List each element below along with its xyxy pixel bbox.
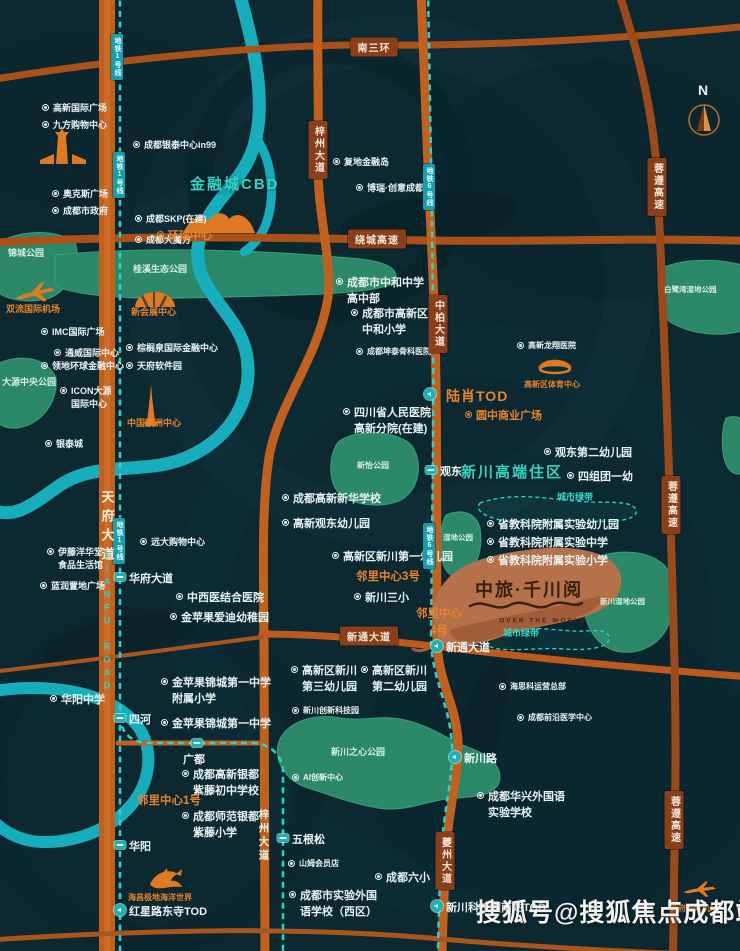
road-badge: 南三环: [351, 38, 398, 57]
poi-bullet-icon: [288, 860, 295, 867]
poi-bullet-icon: [133, 141, 140, 148]
poi-label: 天府软件园: [126, 360, 182, 373]
landmark-label: 双流国际机场: [6, 303, 60, 316]
poi-bullet-icon: [291, 666, 298, 673]
label-text: 四组团一幼: [578, 470, 633, 486]
compass-north-label: N: [698, 82, 708, 98]
label-text: 高新区新川第二幼儿园: [372, 664, 427, 696]
label-text: 高新龙翔医院: [528, 340, 576, 352]
label-text: 蓝润置地广场: [51, 580, 105, 593]
ocean-park-dolphin-icon: [150, 868, 182, 888]
park-label: 湿地公园: [443, 533, 473, 544]
poi-bullet-icon: [333, 158, 340, 165]
poi-bullet-icon: [52, 190, 59, 197]
metro-line-badge: 地铁6号线: [423, 164, 435, 210]
poi-label: 金苹果锦城第一中学: [161, 717, 271, 733]
label-line: 第三幼儿园: [302, 680, 357, 696]
label-line: 国际中心: [71, 398, 112, 411]
poi-bullet-icon: [332, 552, 339, 559]
district-label: 金融城CBD: [190, 174, 280, 196]
poi-label: 银泰城: [45, 438, 83, 451]
poi-bullet-icon: [487, 556, 494, 563]
poi-label: 成都六小: [375, 871, 430, 887]
poi-bullet-icon: [351, 309, 358, 316]
metro-station-marker: [431, 640, 443, 652]
poi-label: 山姆会员店: [288, 858, 339, 870]
poi-label: 棕榈泉国际金融中心: [126, 342, 218, 355]
road-badge: 梓州大道: [309, 121, 328, 179]
poi-bullet-icon: [176, 593, 183, 600]
poi-bullet-icon: [52, 207, 59, 214]
poi-label: 金苹果爱迪幼稚园: [170, 611, 269, 627]
poi-bullet-icon: [135, 215, 142, 222]
label-line: 紫藤初中学校: [193, 784, 259, 800]
road-name-label: 梓州大道: [257, 809, 272, 863]
poi-bullet-icon: [42, 121, 49, 128]
poi-bullet-icon: [45, 440, 52, 447]
road-badge: 绕城高速: [348, 230, 406, 249]
poi-bullet-icon: [487, 538, 494, 545]
label-line: 高新区新川: [302, 664, 357, 680]
label-line: 高新区新川: [372, 664, 427, 680]
metro-station-marker: [449, 751, 461, 763]
label-text: AI创新中心: [303, 772, 343, 784]
poi-label: 成都SKP(在建): [135, 213, 207, 226]
station-name: 华阳: [129, 838, 151, 854]
poi-label: 成都坤泰骨科医院: [356, 346, 431, 358]
poi-label: 海思科运营总部: [499, 681, 566, 693]
label-text: 高新国际广场: [53, 102, 107, 115]
station-name: 华府大道: [129, 570, 173, 586]
park-label: 大源中央公园: [2, 376, 56, 389]
label-text: 新会展中心: [131, 306, 176, 319]
poi-bullet-icon: [356, 184, 363, 191]
landmark-label: 新会展中心: [131, 306, 176, 319]
poi-bullet-icon: [465, 411, 472, 418]
greenbelt-label: 城市绿带: [503, 627, 539, 640]
poi-bullet-icon: [517, 714, 524, 721]
label-text: 圆中商业广场: [476, 409, 542, 425]
poi-label: 成都师范银都紫藤小学: [182, 810, 259, 842]
metro-line-badge: 地铁1号线: [113, 152, 125, 198]
poi-bullet-icon: [157, 231, 164, 238]
label-text: 金苹果锦城第一中学附属小学: [172, 676, 271, 708]
label-text: 成都坤泰骨科医院: [367, 346, 431, 358]
metro-station-marker: [114, 904, 126, 916]
poi-label: 成都市高新区中和小学: [351, 307, 428, 339]
poi-label: 成都华兴外国语实验学校: [477, 790, 565, 822]
label-line: 第二幼儿园: [372, 680, 427, 696]
poi-bullet-icon: [126, 362, 133, 369]
poi-label: 成都高新新华学校: [282, 492, 381, 508]
poi-label: 成都银泰中心in99: [133, 139, 216, 152]
label-text: 成都市政府: [63, 205, 108, 218]
label-text: 中西医结合医院: [187, 591, 264, 607]
poi-bullet-icon: [487, 520, 494, 527]
park-label: 新怡公园: [357, 460, 389, 472]
label-text: 成都SKP(在建): [146, 213, 207, 226]
poi-bullet-icon: [42, 104, 49, 111]
poi-bullet-icon: [282, 519, 289, 526]
poi-label: 复地金融岛: [333, 156, 389, 169]
label-text: 城市绿带: [557, 491, 593, 504]
label-text: 成都高新银都紫藤初中学校: [193, 768, 259, 800]
poi-bullet-icon: [47, 548, 54, 555]
poi-bullet-icon: [356, 348, 363, 355]
label-text: 通威国际中心: [65, 347, 119, 360]
metro-station-marker: [426, 466, 437, 474]
label-text: 大源中央公园: [2, 376, 56, 389]
location-map: 高新国际广场九方购物中心成都银泰中心in99奥克斯广场成都市政府成都SKP(在建…: [0, 0, 740, 951]
poi-label: 通威国际中心: [54, 347, 119, 360]
label-text: 四川省人民医院高新分院(在建): [354, 406, 431, 438]
label-text: 高新区体育中心: [524, 379, 580, 391]
poi-label: 省教科院附属实验小学: [487, 554, 608, 570]
poi-bullet-icon: [354, 593, 361, 600]
label-text: 棕榈泉国际金融中心: [137, 342, 218, 355]
poi-bullet-icon: [161, 719, 168, 726]
metro-line-badge: 地铁1号线: [111, 34, 123, 80]
road-badge: 蓉遵高速: [665, 791, 684, 849]
poi-label: 观东第二幼儿园: [544, 446, 632, 462]
park-label: 新川之心公园: [331, 746, 385, 759]
poi-label: 成都市政府: [52, 205, 108, 218]
station-name: 四河: [129, 711, 151, 727]
metro-line-badge: 地铁6号线: [423, 523, 435, 569]
metro-station-marker: [424, 388, 436, 400]
park-label: 新川湿地公园: [600, 597, 645, 608]
neighborhood-center-label: 邻里中心1号: [137, 793, 201, 810]
watermark: 搜狐号@搜狐焦点成都站: [476, 893, 740, 929]
poi-bullet-icon: [140, 538, 147, 545]
poi-label: 领地环球金融中心: [41, 360, 124, 373]
label-line: 伊藤洋华堂: [58, 546, 103, 559]
poi-label: 成都前沿医学中心: [517, 712, 592, 724]
label-text: 成都华兴外国语实验学校: [488, 790, 565, 822]
poi-label: 博瑞·创意成都: [356, 182, 424, 195]
road-badge: 蓉遵高速: [662, 476, 681, 534]
road-badge: 夔州大道: [436, 832, 455, 890]
poi-bullet-icon: [499, 683, 506, 690]
label-text: 新川三小: [365, 591, 409, 607]
poi-bullet-icon: [41, 328, 48, 335]
neighborhood-center-label: 邻里中心3号: [356, 569, 420, 586]
label-text: 华阳中学: [61, 693, 105, 709]
metro-station-marker: [278, 834, 289, 842]
park-east-edge: [722, 417, 740, 474]
poi-bullet-icon: [282, 494, 289, 501]
poi-label: 高新观东幼儿园: [282, 517, 370, 533]
label-text: 新川创新科技园: [303, 705, 359, 717]
road-name-label: TIANFU ROAD: [102, 551, 112, 694]
station-name: 观东: [440, 463, 462, 479]
label-line: ICON大源: [71, 385, 112, 398]
label-text: 金苹果爱迪幼稚园: [181, 611, 269, 627]
landmark-label: 中国欧洲中心: [127, 417, 181, 430]
label-text: 省教科院附属实验小学: [498, 554, 608, 570]
label-line: 成都市高新区: [362, 307, 428, 323]
poi-bullet-icon: [50, 695, 57, 702]
label-text: 中国欧洲中心: [127, 417, 181, 430]
label-line: 附属小学: [172, 692, 271, 708]
poi-label: 省教科院附属实验中学: [487, 536, 608, 552]
label-line: 4号: [413, 623, 465, 640]
label-text: 观东第二幼儿园: [555, 446, 632, 462]
poi-bullet-icon: [54, 349, 61, 356]
label-line: 四川省人民医院: [354, 406, 431, 422]
label-text: 金融城CBD: [190, 174, 280, 196]
metro-station-marker: [431, 900, 443, 912]
poi-label: 高新区新川第二幼儿园: [361, 664, 427, 696]
road-badge: 新通大道: [340, 627, 398, 646]
label-text: 城市绿带: [503, 627, 539, 640]
poi-bullet-icon: [41, 362, 48, 369]
poi-label: AI创新中心: [292, 772, 343, 784]
label-text: 成都银泰中心in99: [144, 139, 216, 152]
station-name: 广都: [183, 751, 205, 767]
label-text: 伊藤洋华堂食品生活馆: [58, 546, 103, 572]
landmark-label: 圆中商业广场: [465, 409, 542, 425]
poi-label: 省教科院附属实验幼儿园: [487, 518, 619, 534]
poi-bullet-icon: [477, 792, 484, 799]
label-text: 高新观东幼儿园: [293, 517, 370, 533]
label-text: 邻里中心1号: [137, 793, 201, 810]
road-badge: 中柏大道: [429, 295, 448, 353]
label-line: 成都高新银都: [193, 768, 259, 784]
park-label: 桂溪生态公园: [133, 263, 187, 276]
label-text: 复地金融岛: [344, 156, 389, 169]
landmark-label: 环球中心: [157, 229, 212, 245]
metro-station-marker: [192, 739, 203, 747]
label-text: 领地环球金融中心: [52, 360, 124, 373]
poi-bullet-icon: [182, 812, 189, 819]
poi-label: 奥克斯广场: [52, 188, 108, 201]
label-text: 锦城公园: [8, 247, 44, 260]
road-badge: 蓉遵高速: [648, 158, 667, 216]
label-text: 成都师范银都紫藤小学: [193, 810, 259, 842]
station-name: 红星路东寺TOD: [129, 903, 207, 919]
poi-label: 四川省人民医院高新分院(在建): [343, 406, 431, 438]
label-text: 海思科运营总部: [510, 681, 566, 693]
label-text: 成都市实验外国语学校（西区）: [300, 889, 377, 921]
label-text: 金苹果锦城第一中学: [172, 717, 271, 733]
poi-bullet-icon: [292, 707, 299, 714]
label-text: 桂溪生态公园: [133, 263, 187, 276]
label-text: 白鹭湾湿地公园: [664, 285, 717, 296]
label-text: 新川湿地公园: [600, 597, 645, 608]
poi-bullet-icon: [375, 873, 382, 880]
poi-label: 中西医结合医院: [176, 591, 264, 607]
poi-bullet-icon: [161, 678, 168, 685]
poi-label: IMC国际广场: [41, 326, 105, 339]
label-text: 省教科院附属实验幼儿园: [498, 518, 619, 534]
label-line: 高新分院(在建): [354, 422, 431, 438]
label-text: 山姆会员店: [299, 858, 339, 870]
poi-label: 远大购物中心: [140, 536, 205, 549]
poi-bullet-icon: [135, 236, 142, 243]
project-logo-subtitle: OVER THE WORLD: [499, 618, 587, 625]
label-text: 九方购物中心: [53, 119, 107, 132]
poi-label: 成都市中和中学高中部: [336, 276, 424, 308]
label-text: 新川之心公园: [331, 746, 385, 759]
poi-label: 四组团一幼: [567, 470, 633, 486]
station-name: 新川路: [464, 750, 497, 766]
poi-label: 新川创新科技园: [292, 705, 359, 717]
poi-bullet-icon: [544, 448, 551, 455]
label-line: 金苹果锦城第一中学: [172, 676, 271, 692]
metro-station-marker: [115, 573, 126, 581]
label-line: 食品生活馆: [58, 559, 103, 572]
label-text: 陆肖TOD: [446, 386, 508, 406]
poi-bullet-icon: [336, 278, 343, 285]
poi-label: ICON大源国际中心: [60, 385, 112, 411]
park-label: 锦城公园: [8, 247, 44, 260]
label-line: 成都师范银都: [193, 810, 259, 826]
poi-label: 蓝润置地广场: [40, 580, 105, 593]
label-text: 海昌极地海洋世界: [128, 892, 192, 904]
label-line: 紫藤小学: [193, 826, 259, 842]
poi-bullet-icon: [343, 408, 350, 415]
label-text: 省教科院附属实验中学: [498, 536, 608, 552]
label-text: 成都市中和中学高中部: [347, 276, 424, 308]
landmark-label: 海昌极地海洋世界: [128, 892, 192, 904]
poi-label: 高新龙翔医院: [517, 340, 576, 352]
label-text: 高新区新川第一幼儿园: [343, 550, 453, 566]
label-text: 邻里中心3号: [356, 569, 420, 586]
label-text: 成都市高新区中和小学: [362, 307, 428, 339]
label-text: 新川高端住区: [461, 462, 563, 484]
label-text: 银泰城: [56, 438, 83, 451]
label-text: ICON大源国际中心: [71, 385, 112, 411]
label-text: 湿地公园: [443, 533, 473, 544]
label-text: 远大购物中心: [151, 536, 205, 549]
station-name: 新通大道: [446, 639, 490, 655]
label-line: 成都市实验外国: [300, 889, 377, 905]
poi-bullet-icon: [292, 774, 299, 781]
label-text: IMC国际广场: [52, 326, 105, 339]
poi-label: 高新国际广场: [42, 102, 107, 115]
park-label: 白鹭湾湿地公园: [664, 285, 717, 296]
poi-bullet-icon: [361, 666, 368, 673]
label-text: 邻里中心4号: [413, 606, 465, 639]
label-text: 博瑞·创意成都: [367, 182, 424, 195]
station-name: 五根松: [292, 831, 325, 847]
landmark-label: 高新区体育中心: [524, 379, 580, 391]
label-line: 实验学校: [488, 806, 565, 822]
greenbelt-label: 城市绿带: [557, 491, 593, 504]
label-text: 成都前沿医学中心: [528, 712, 592, 724]
poi-label: 华阳中学: [50, 693, 105, 709]
poi-bullet-icon: [567, 472, 574, 479]
label-text: 奥克斯广场: [63, 188, 108, 201]
label-text: 高新区新川第三幼儿园: [302, 664, 357, 696]
label-line: 中和小学: [362, 323, 428, 339]
label-text: 成都六小: [386, 871, 430, 887]
landmark-label: 陆肖TOD: [446, 386, 508, 406]
project-logo-title: 中旅·千川阅: [475, 576, 583, 602]
park-bailuwan: [658, 260, 740, 334]
label-text: 环球中心: [168, 229, 212, 245]
poi-bullet-icon: [289, 891, 296, 898]
poi-bullet-icon: [126, 344, 133, 351]
label-text: 双流国际机场: [6, 303, 60, 316]
label-line: 成都市中和中学: [347, 276, 424, 292]
metro-station-marker: [115, 841, 126, 849]
poi-label: 伊藤洋华堂食品生活馆: [47, 546, 103, 572]
poi-label: 新川三小: [354, 591, 409, 607]
poi-label: 高新区新川第三幼儿园: [291, 664, 357, 696]
label-text: 天府软件园: [137, 360, 182, 373]
poi-bullet-icon: [40, 582, 47, 589]
poi-bullet-icon: [170, 613, 177, 620]
metro-station-marker: [115, 714, 126, 722]
label-line: 高中部: [347, 292, 424, 308]
label-text: 新怡公园: [357, 460, 389, 472]
poi-label: 金苹果锦城第一中学附属小学: [161, 676, 271, 708]
poi-label: 九方购物中心: [42, 119, 107, 132]
poi-bullet-icon: [517, 342, 524, 349]
neighborhood-center-label: 邻里中心4号: [413, 606, 465, 639]
label-text: 成都高新新华学校: [293, 492, 381, 508]
poi-bullet-icon: [60, 387, 67, 394]
label-line: 成都华兴外国语: [488, 790, 565, 806]
poi-label: 成都市实验外国语学校（西区）: [289, 889, 377, 921]
label-line: 语学校（西区）: [300, 905, 377, 921]
poi-bullet-icon: [182, 770, 189, 777]
district-label: 新川高端住区: [461, 462, 563, 484]
label-line: 邻里中心: [413, 606, 465, 623]
